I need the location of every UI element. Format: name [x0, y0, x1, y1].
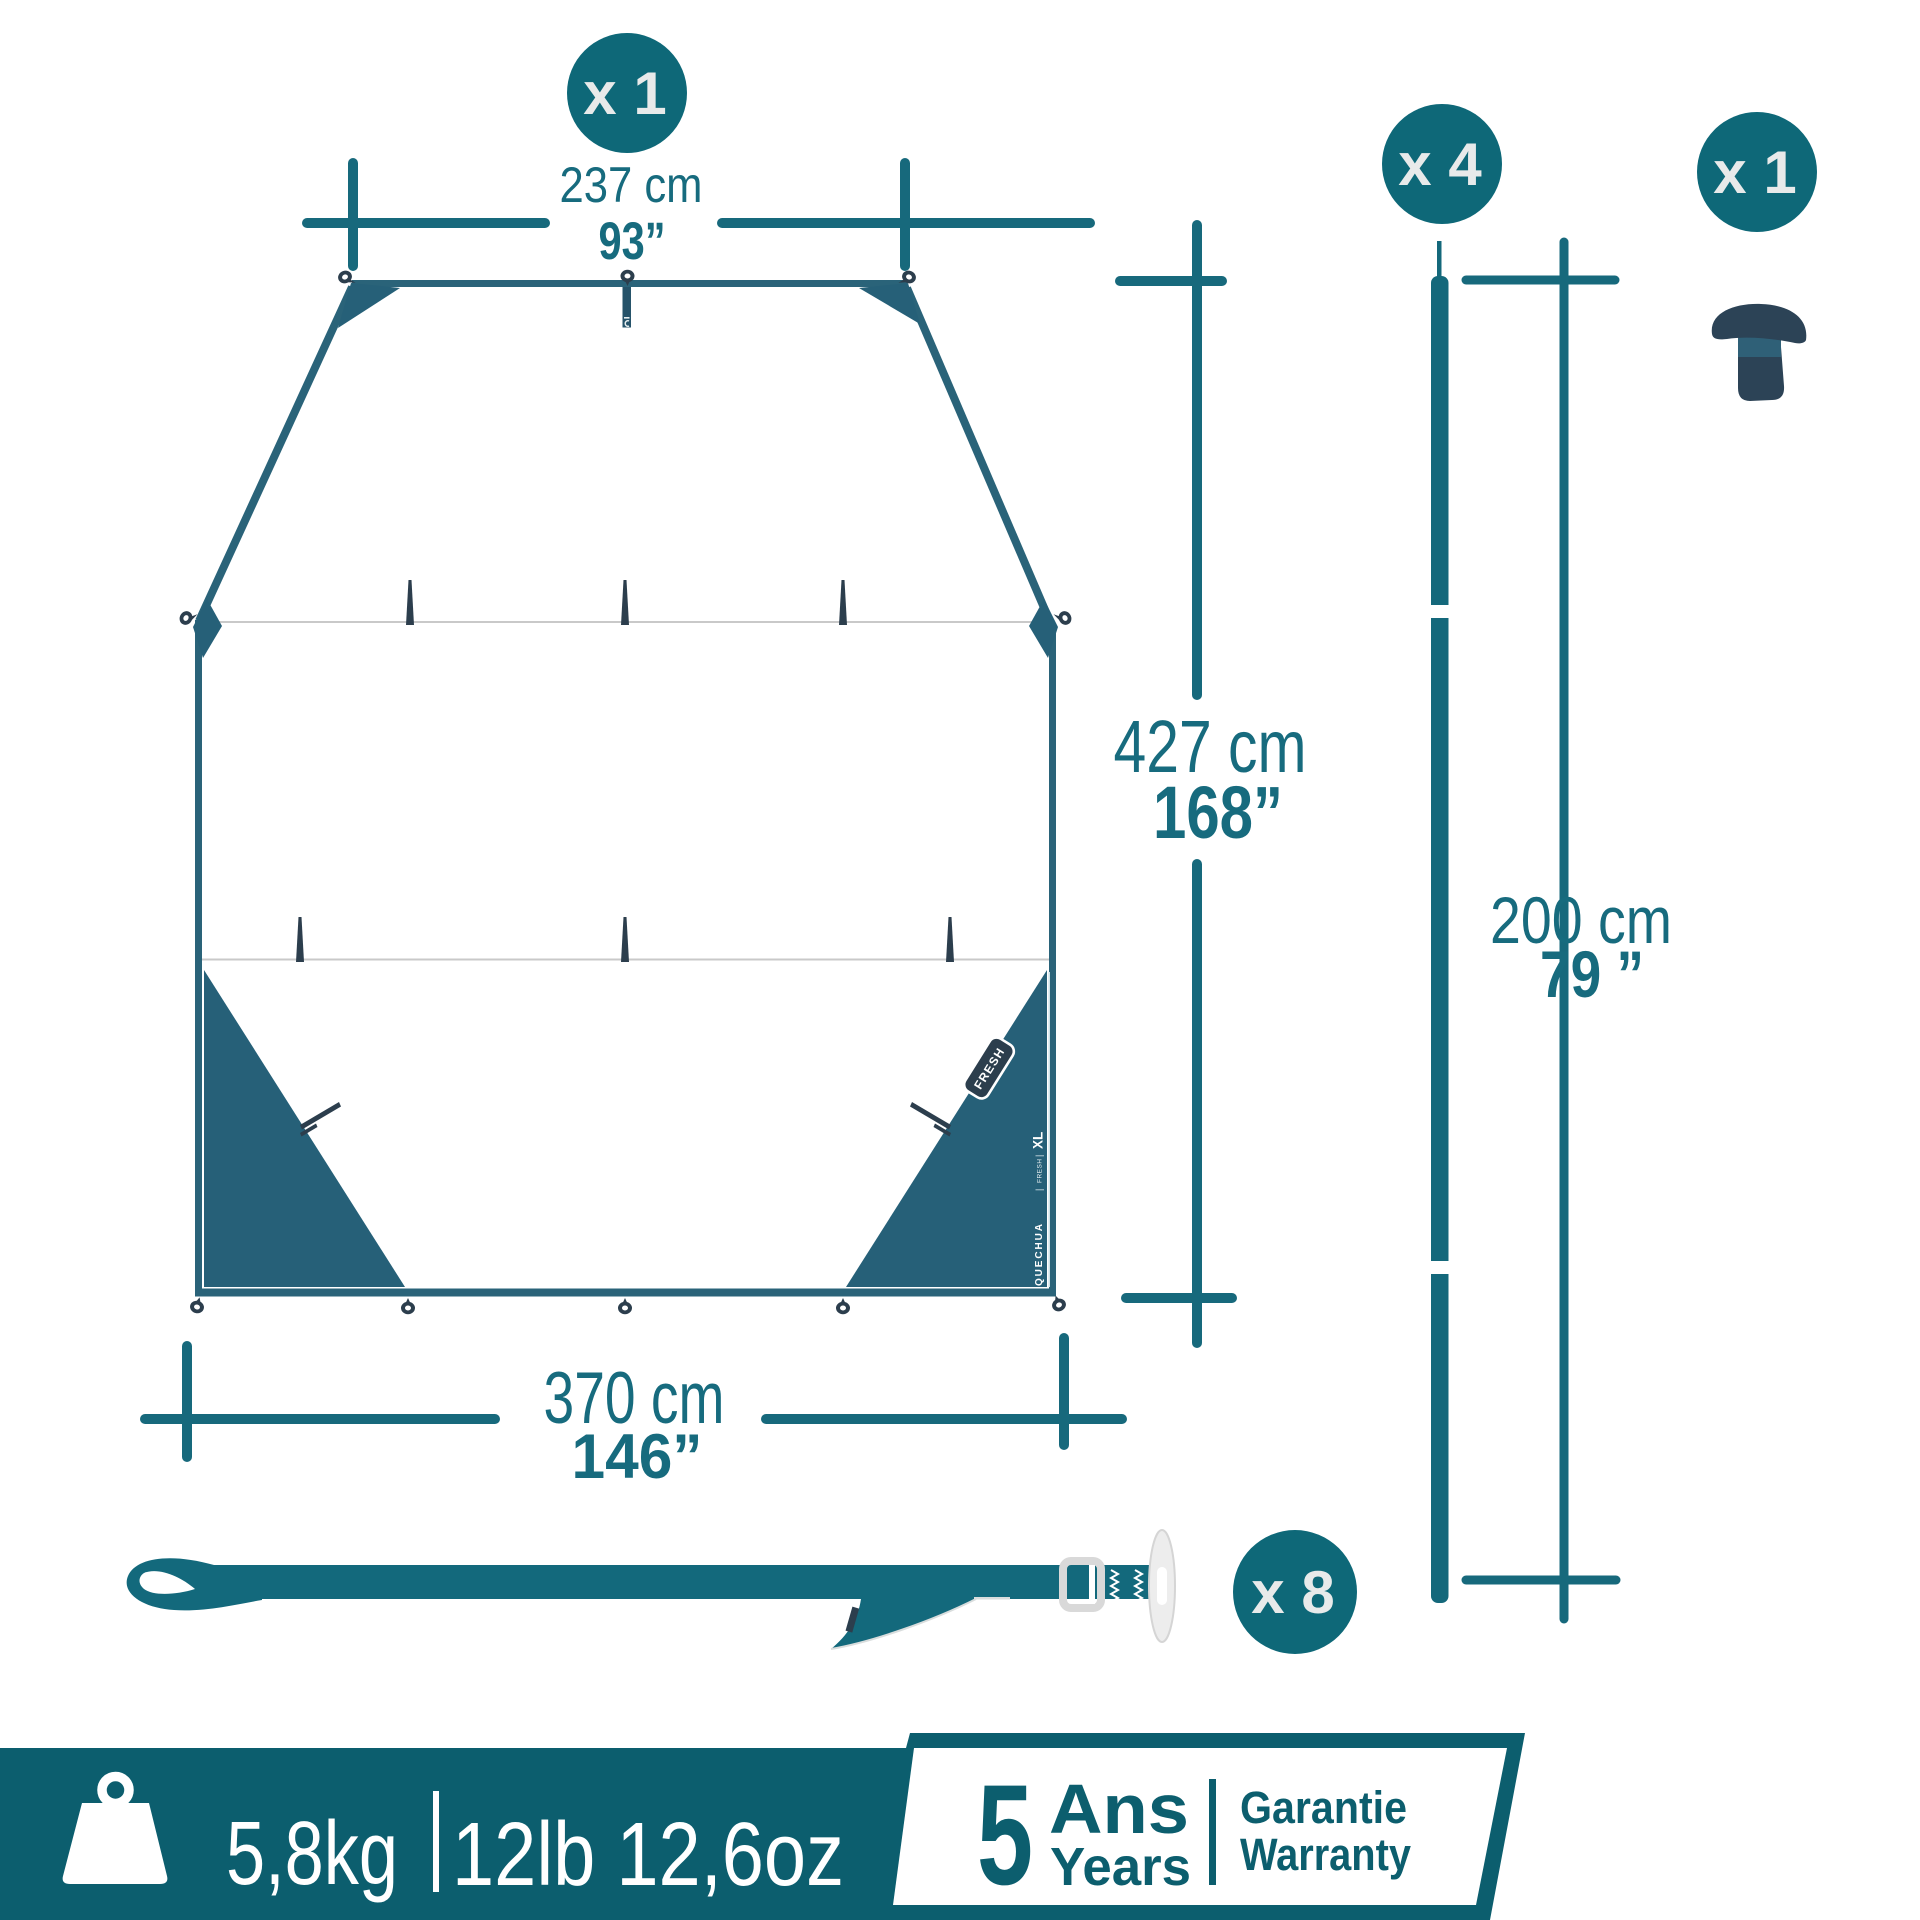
svg-text:XL: XL: [1031, 1132, 1046, 1149]
svg-text:Garantie: Garantie: [1240, 1782, 1407, 1833]
svg-text:79 ”: 79 ”: [1540, 937, 1644, 1011]
svg-text:168”: 168”: [1153, 771, 1283, 854]
svg-text:Warranty: Warranty: [1240, 1829, 1411, 1880]
svg-text:Years: Years: [1050, 1837, 1191, 1897]
svg-text:5,8kg: 5,8kg: [226, 1804, 398, 1904]
svg-text:x 8: x 8: [1251, 1559, 1334, 1626]
svg-text:146”: 146”: [572, 1422, 703, 1492]
svg-text:x 4: x 4: [1398, 131, 1482, 198]
svg-text:x 1: x 1: [583, 60, 666, 127]
svg-text:QUECHUA: QUECHUA: [1034, 1222, 1045, 1286]
svg-text:|: |: [1034, 1189, 1044, 1191]
svg-text:237 cm: 237 cm: [560, 157, 703, 213]
svg-text:12lb 12,6oz: 12lb 12,6oz: [452, 1805, 844, 1905]
svg-text:FRESH: FRESH: [1037, 1158, 1044, 1183]
svg-text:5: 5: [977, 1756, 1033, 1915]
svg-text:93”: 93”: [599, 212, 666, 271]
svg-text:|: |: [1034, 1155, 1044, 1157]
svg-text:x 1: x 1: [1713, 139, 1796, 206]
